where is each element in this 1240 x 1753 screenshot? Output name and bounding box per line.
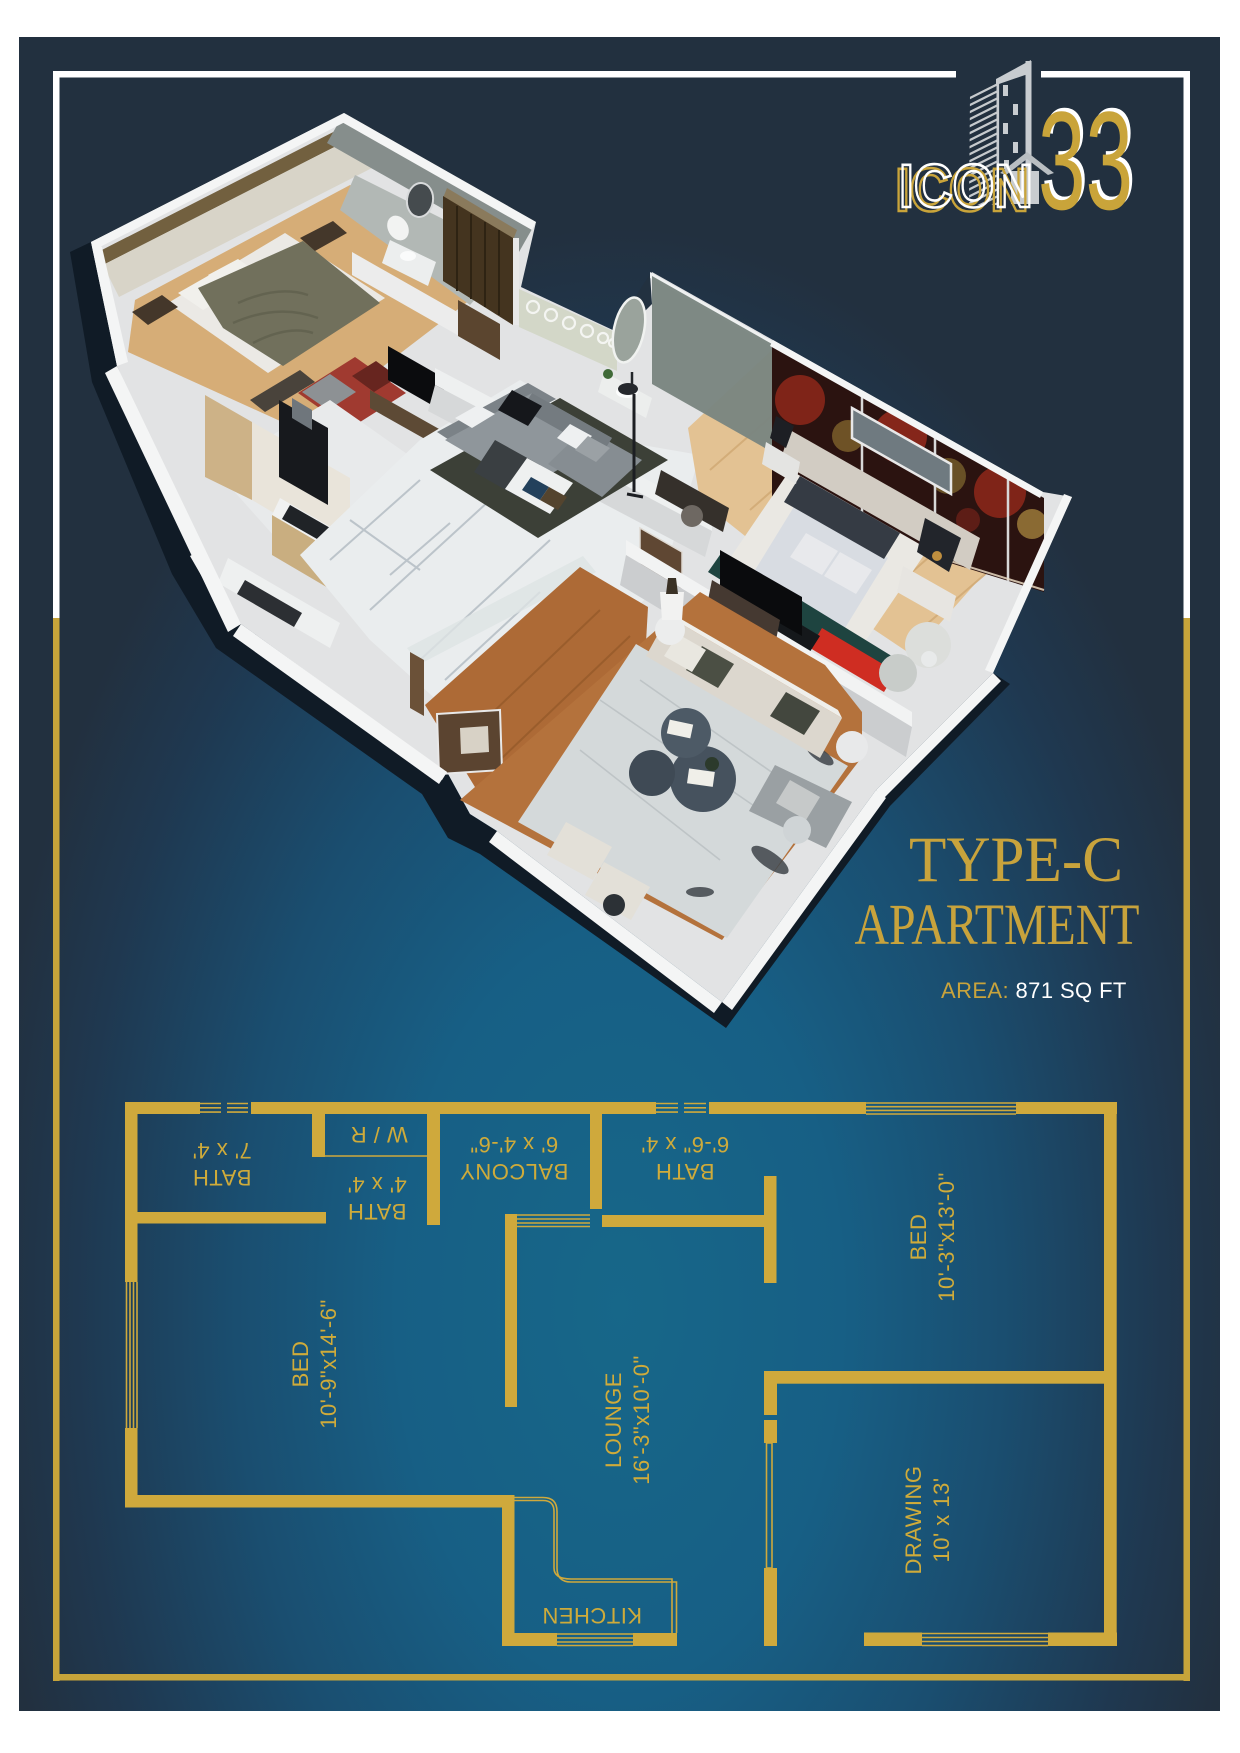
svg-text:ICON: ICON — [899, 152, 1033, 220]
svg-text:BALCONY: BALCONY — [460, 1159, 569, 1184]
svg-text:BATH: BATH — [192, 1165, 251, 1190]
svg-text:BED: BED — [906, 1214, 931, 1261]
svg-text:W / R: W / R — [350, 1122, 408, 1147]
svg-text:APARTMENT: APARTMENT — [855, 892, 1140, 957]
svg-text:BATH: BATH — [347, 1199, 406, 1224]
svg-text:6' x 4'-6": 6' x 4'-6" — [470, 1132, 558, 1157]
svg-text:BATH: BATH — [655, 1159, 714, 1184]
svg-text:10' x 13': 10' x 13' — [929, 1477, 954, 1562]
svg-text:TYPE-C: TYPE-C — [909, 824, 1123, 896]
svg-text:4' x 4': 4' x 4' — [347, 1172, 407, 1197]
svg-text:16'-3"x10'-0": 16'-3"x10'-0" — [629, 1355, 654, 1485]
svg-text:KITCHEN: KITCHEN — [542, 1603, 642, 1628]
svg-text:BED: BED — [288, 1341, 313, 1388]
svg-text:AREA: 871 SQ FT: AREA: 871 SQ FT — [941, 978, 1127, 1003]
svg-text:10'-3"x13'-0": 10'-3"x13'-0" — [934, 1172, 959, 1302]
svg-text:7' x 4': 7' x 4' — [192, 1138, 252, 1163]
svg-text:DRAWING: DRAWING — [901, 1465, 926, 1574]
svg-text:10'-9"x14'-6": 10'-9"x14'-6" — [316, 1299, 341, 1429]
svg-text:33: 33 — [1038, 82, 1133, 239]
svg-text:6'-6" x 4': 6'-6" x 4' — [641, 1132, 729, 1157]
svg-text:LOUNGE: LOUNGE — [601, 1372, 626, 1468]
